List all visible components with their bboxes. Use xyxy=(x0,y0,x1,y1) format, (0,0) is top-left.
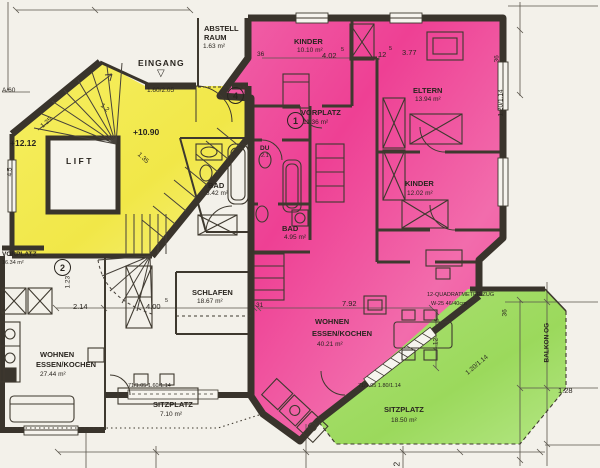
room-label-sitzplatz-west: SITZPLATZ xyxy=(153,401,193,409)
area-bad-west: 3.42 m² xyxy=(206,191,228,198)
room-label-bad-west: BAD xyxy=(208,182,224,190)
room-label-lift: LIFT xyxy=(66,157,94,166)
unit-marker-4: 4 xyxy=(227,87,244,104)
area-wohnen-west: 27.44 m² xyxy=(40,372,66,379)
area-bad-ost: 4.95 m² xyxy=(284,235,306,242)
dim-36-right: 36 xyxy=(495,55,502,62)
area-abstellraum: 1.63 m² xyxy=(203,44,225,51)
floorplan-scan: ABSTELL RAUM 1.63 m² EINGANG ▽ 1.60/2.05… xyxy=(0,0,600,468)
dim-412-sup: 5 xyxy=(436,318,442,321)
dim-a60: A/60 xyxy=(2,88,15,95)
unit-marker-2-number: 2 xyxy=(60,263,65,273)
lift-shaft xyxy=(48,138,118,212)
room-label-wohnen-ost-2: ESSEN/KOCHEN xyxy=(312,330,372,338)
dim-377: 3.77 xyxy=(402,49,417,57)
room-label-wohnen-west-2: ESSEN/KOCHEN xyxy=(36,361,96,369)
dim-402: 4.02 xyxy=(322,52,337,60)
room-label-wohnen-ost: WOHNEN xyxy=(315,318,349,326)
dim-123: 1.23 xyxy=(66,276,73,289)
room-label-vorplatz-og: VORPLATZ xyxy=(301,109,341,117)
dim-128: 1.28 xyxy=(558,387,573,395)
level-stair-upper: +12.12 xyxy=(10,139,36,148)
entrance-label: EINGANG xyxy=(138,59,185,68)
dim-412: 4.12 xyxy=(434,338,441,351)
unit-marker-2: 2 xyxy=(54,259,71,276)
dim-400: 4.00 xyxy=(146,303,161,311)
area-vorplatz-west: 16.34 m² xyxy=(2,261,24,267)
room-label-schlafen: SCHLAFEN xyxy=(192,289,233,297)
room-label-kinder-ost: KINDER xyxy=(405,180,434,188)
area-sitzplatz-ost: 18.50 m² xyxy=(391,418,417,425)
note-line2: W-25 46/40cm xyxy=(431,302,467,308)
room-label-vorplatz-west: VORPLATZ xyxy=(2,252,37,259)
room-label-bad-ost: BAD xyxy=(282,225,298,233)
dim-402-sup: 5 xyxy=(341,48,344,54)
note-line1: 12-QUADRATMETER-ZUG xyxy=(427,293,494,299)
dim-45: 4.5 xyxy=(8,167,15,176)
unit-marker-1-number: 1 xyxy=(293,116,298,126)
level-entry: +10.90 xyxy=(133,128,159,137)
room-label-eltern: ELTERN xyxy=(413,87,442,95)
area-kinder-ost: 12.02 m² xyxy=(407,191,433,198)
dim-12: 12 xyxy=(378,51,386,59)
dim-window-right: 1.20/1.14 xyxy=(499,89,506,116)
dim-36-a: 36 xyxy=(257,52,264,59)
dim-400-sup: 5 xyxy=(165,299,168,305)
room-label-abstellraum: ABSTELL xyxy=(204,25,239,33)
dim-doors-west: 71/1.05 1.60/1.14 xyxy=(128,384,171,390)
dim-214: 2.14 xyxy=(73,303,88,311)
area-kinder-nord: 10.10 m² xyxy=(297,48,323,55)
room-label-kinder-nord: KINDER xyxy=(294,38,323,46)
area-sitzplatz-west: 7.10 m² xyxy=(160,412,182,419)
area-wohnen-ost: 40.21 m² xyxy=(317,342,343,349)
dim-entrance-door: 1.60/2.05 xyxy=(147,88,174,95)
dim-doors-green: 71/1.05 1.80/1.14 xyxy=(358,384,401,390)
room-label-sitzplatz-ost: SITZPLATZ xyxy=(384,406,424,414)
room-label-wohnen-west: WOHNEN xyxy=(40,351,74,359)
room-label-abstellraum-2: RAUM xyxy=(204,34,227,42)
dim-12-sup: 5 xyxy=(389,47,392,53)
area-vorplatz-og: 11.36 m² xyxy=(303,120,328,127)
dim-2-bottom: 2 xyxy=(393,462,402,467)
label-balkon: BALKON OG xyxy=(545,323,552,363)
unit-marker-1: 1 xyxy=(287,112,304,129)
area-eltern: 13.94 m² xyxy=(415,97,441,104)
dim-36-green: 36 xyxy=(503,309,510,316)
area-dusche: 2.1 xyxy=(261,154,269,160)
unit-marker-4-number: 4 xyxy=(233,91,238,101)
area-schlafen: 18.67 m² xyxy=(197,299,223,306)
dim-792: 7.92 xyxy=(342,300,357,308)
entrance-arrow-icon: ▽ xyxy=(157,69,165,79)
dim-31: 31 xyxy=(256,303,263,310)
room-label-dusche: DU xyxy=(260,146,269,153)
